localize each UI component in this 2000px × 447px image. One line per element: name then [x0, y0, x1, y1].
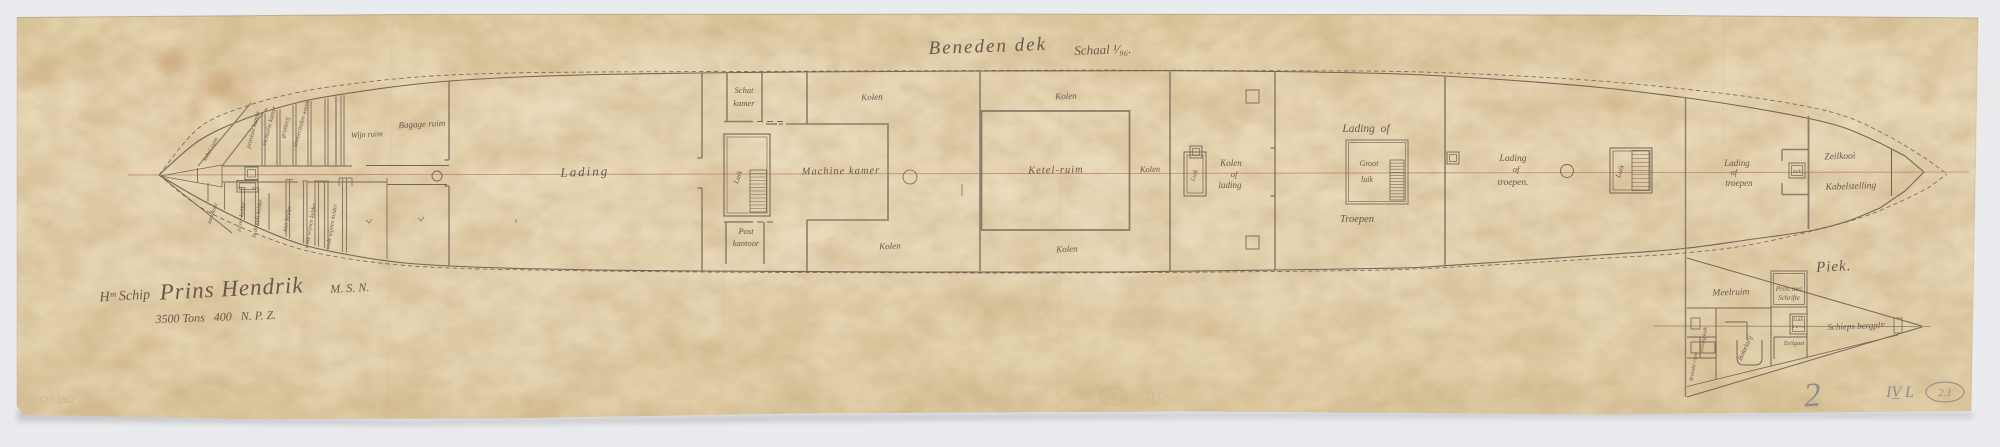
svg-text:Troepen: Troepen: [1340, 214, 1374, 225]
svg-text:Kolen: Kolen: [1219, 158, 1242, 168]
svg-text:Kolen: Kolen: [878, 241, 901, 252]
svg-text:Meelruim: Meelruim: [1711, 287, 1749, 298]
svg-text:kantoor: kantoor: [733, 238, 760, 248]
svg-text:luik: luik: [1361, 175, 1373, 184]
svg-text:Post: Post: [737, 226, 754, 236]
svg-text:Zeilkooi: Zeilkooi: [1824, 151, 1856, 162]
svg-text:Beneden dek: Beneden dek: [928, 34, 1047, 59]
svg-text:2: 2: [1802, 376, 1822, 414]
svg-text:Lading: Lading: [559, 163, 609, 180]
svg-text:Wijn ruim: Wijn ruim: [351, 129, 383, 140]
svg-text:2: 2: [1110, 391, 1116, 403]
svg-text:IV̲ L: IV̲ L: [1885, 384, 1914, 401]
svg-text:Machine kamer: Machine kamer: [801, 165, 881, 177]
svg-text:Schrifte: Schrifte: [1778, 294, 1800, 302]
svg-text:2.1: 2.1: [1938, 387, 1952, 399]
svg-text:Piek.: Piek.: [1815, 258, 1852, 276]
svg-text:Lading: Lading: [1723, 158, 1750, 168]
svg-text:Lading of: Lading of: [1341, 123, 1391, 135]
svg-text:Lading: Lading: [1499, 154, 1527, 164]
svg-text:kamer: kamer: [733, 98, 755, 108]
svg-text:Kolen: Kolen: [860, 92, 883, 103]
svg-text:Hᵐ Schip: Hᵐ Schip: [98, 288, 150, 306]
svg-text:Kabelstelling: Kabelstelling: [1824, 181, 1876, 193]
svg-text:Ketel-ruim: Ketel-ruim: [1027, 165, 1084, 177]
svg-text:Kolen: Kolen: [1055, 244, 1078, 255]
svg-text:4.6×5: 4.6×5: [1792, 325, 1805, 330]
svg-text:M. S. N.: M. S. N.: [329, 280, 370, 296]
svg-text:Schieps bergplᵗᵖ: Schieps bergplᵗᵖ: [1827, 320, 1885, 332]
svg-text:Schaal ¹⁄₉₆.: Schaal ¹⁄₉₆.: [1074, 41, 1131, 58]
svg-text:luik: luik: [1793, 169, 1802, 175]
svg-text:Zeilgast: Zeilgast: [1784, 340, 1805, 347]
svg-text:Kolen: Kolen: [1139, 164, 1161, 175]
svg-text:lading: lading: [1218, 180, 1242, 190]
svg-text:Schat: Schat: [735, 85, 755, 95]
svg-text:troepen: troepen: [1725, 178, 1753, 188]
svg-text:Groot: Groot: [1360, 159, 1380, 168]
svg-text:Luik: Luik: [1792, 317, 1803, 323]
svg-text:IV‌L: IV‌L: [1145, 389, 1164, 403]
svg-text:Kolen: Kolen: [1054, 91, 1077, 102]
svg-text:troepen.: troepen.: [1497, 178, 1528, 188]
svg-text:C²³° 1862: C²³° 1862: [39, 395, 75, 405]
svg-text:Prov. met: Prov. met: [1775, 285, 1803, 293]
